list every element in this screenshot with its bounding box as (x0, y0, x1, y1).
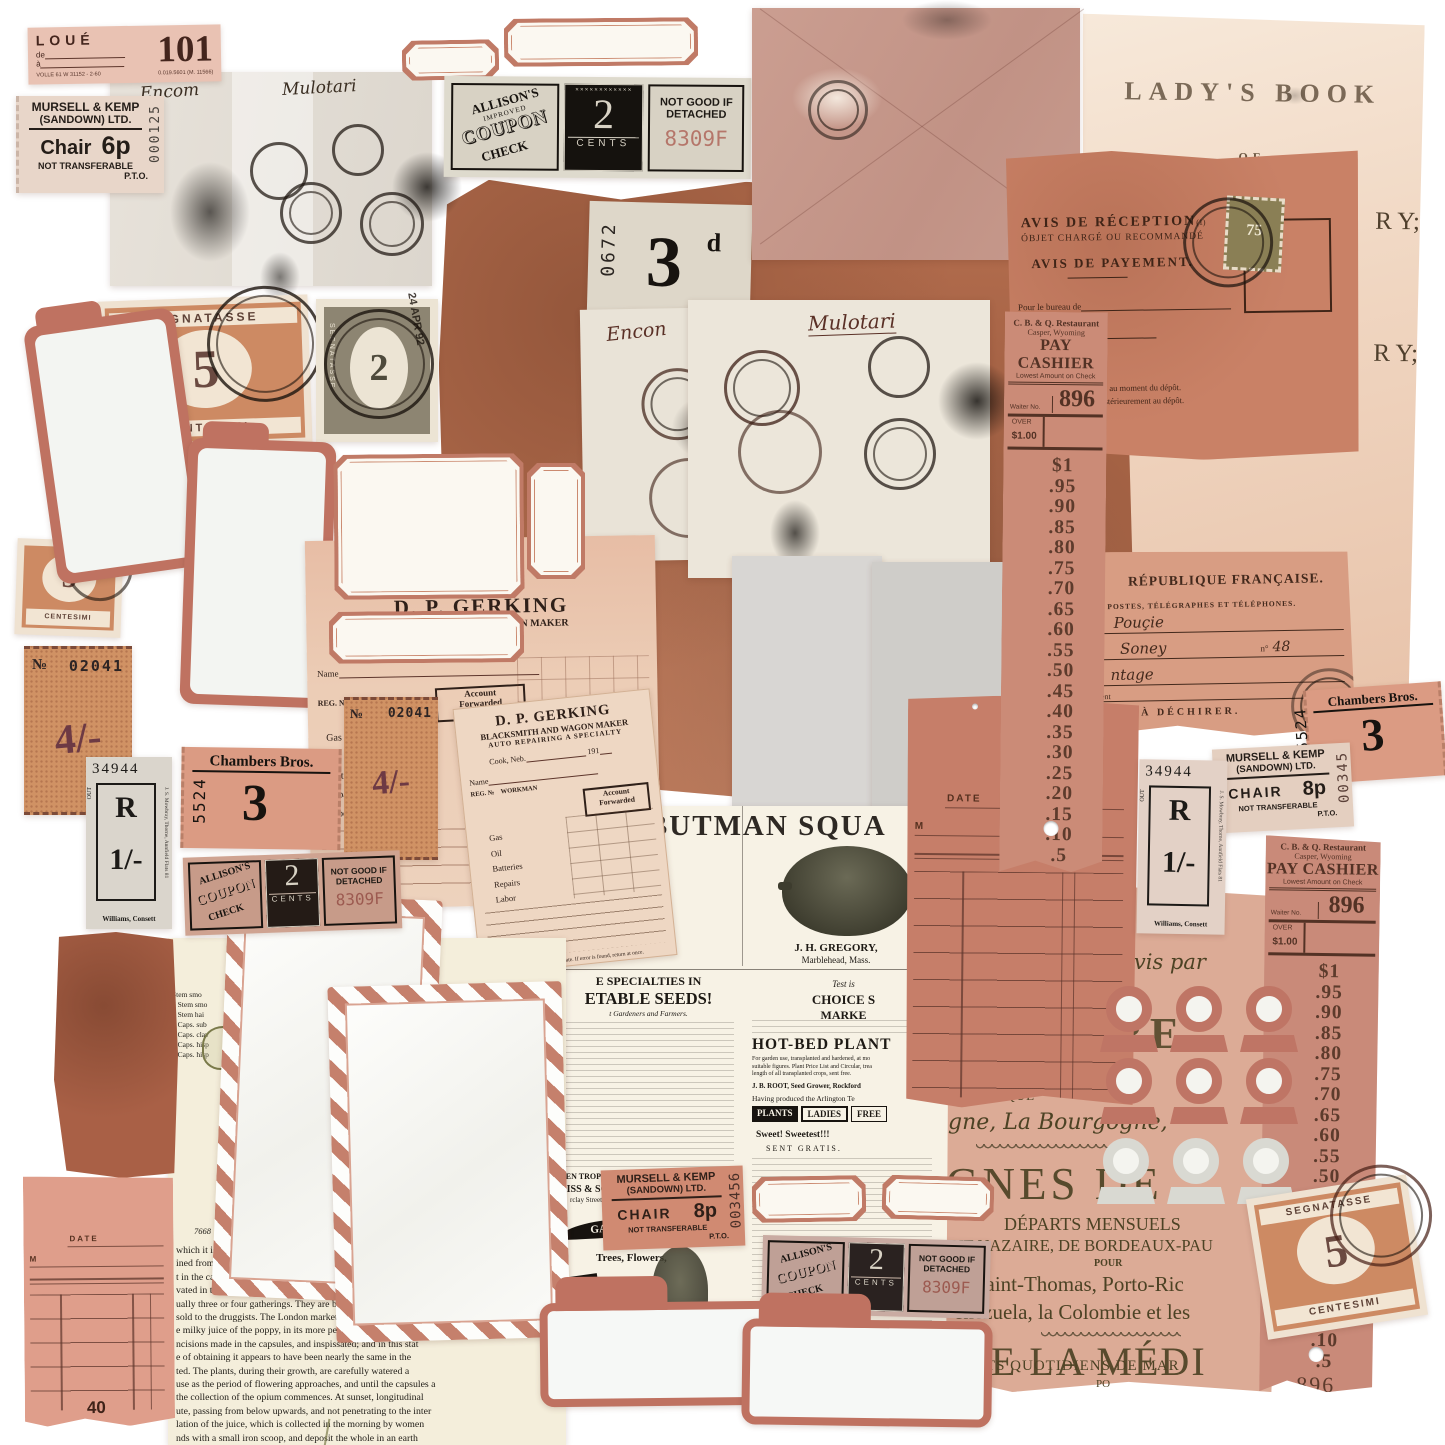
ticket-note: NOT TRANSFERABLE (23, 161, 148, 171)
handwriting: Soney (1120, 639, 1167, 658)
postmark-icon (280, 182, 342, 244)
ticket-serial: 000125 (148, 104, 163, 163)
grid-label (881, 1175, 994, 1222)
page-edge-text: R Y; (1375, 208, 1420, 237)
postmark-icon (864, 418, 936, 490)
ticket-bottom-text: Williams, Consett (86, 915, 172, 923)
pc-over-row: OVER $1.00 (1007, 417, 1102, 451)
anchor-base (1097, 1187, 1155, 1204)
stain (1282, 86, 1308, 104)
allison-serial-panel: NOT GOOD IF DETACHED 8309F (648, 84, 744, 172)
loue-ticket: LOUÉ de à 101 VOLLE 61 W 31152 - 2-60 0.… (28, 24, 222, 84)
ticket-number-row: №02041 (344, 700, 438, 722)
rf-no-val: 48 (1272, 639, 1290, 655)
postmark-icon (808, 80, 868, 140)
allison-value: 2 (564, 93, 644, 138)
allison-coupon-check: ALLISON'S COUPON CHECK 2 CENTS NOT GOOD … (183, 850, 403, 936)
anchor-ring-icon (1243, 1138, 1289, 1184)
segnatasse-2-lire-stamp: SEGNATASSE 2 24 APR 92 (316, 299, 438, 442)
ticket-box: R 1/- (1147, 785, 1211, 906)
ticket-item: CHAIR (1228, 783, 1283, 802)
allison-detached: DETACHED (910, 1263, 983, 1275)
allison-detached: DETACHED (324, 874, 393, 886)
allison-unit: CENTS (851, 1276, 901, 1287)
label-inner-rule (336, 617, 517, 657)
choice1: Test is (832, 979, 854, 989)
no-02041-ticket: №02041 4/- (344, 697, 438, 860)
blank-label (504, 17, 698, 67)
postmark-icon (332, 124, 384, 176)
r-34944-ticket: 34944 R 1/- J. S. Mowbray, Thorne, Annfi… (1136, 759, 1227, 935)
handwriting: Pouçie (1113, 613, 1164, 632)
chambers-serial: 5524 (190, 777, 210, 824)
pc-check-no: 896 (1319, 892, 1374, 920)
rule (29, 128, 142, 130)
pc-waiter-row: Waiter No. 896 (1008, 385, 1103, 418)
rule (68, 1245, 164, 1247)
form-line: Pouçie (1099, 610, 1343, 634)
pc-check-no: 896 (1053, 386, 1101, 414)
avis-title: AVIS DE RÉCEPTION (1021, 214, 1197, 231)
handwriting: Mulotari (282, 76, 358, 100)
chambers-bros-ticket: Chambers Bros. 5524 3 (180, 747, 341, 850)
r-34944-ticket: 34944 R 1/- J. S. Mowbray, Thorne, Annfi… (86, 757, 172, 929)
section-rule (556, 969, 926, 970)
ink-smudge (902, 0, 992, 40)
allison-notgood: NOT GOOD IF (650, 96, 742, 109)
restaurant-date-card: DATE M 40 (23, 1175, 175, 1426)
ticket-serial: 003456 (727, 1172, 745, 1229)
anchor-base (1100, 1107, 1158, 1124)
m-label: M (30, 1255, 39, 1264)
ticket-unit: d (706, 228, 721, 258)
loue-brand: LOUÉ (36, 30, 158, 48)
squash-stem (778, 882, 792, 890)
segnatasse-5-stamp: SEGNATASSE 5 CENTESIMI (1246, 1174, 1428, 1340)
ticket-number: 34944 (86, 757, 172, 778)
photo-anchor (1170, 1058, 1228, 1124)
loue-small-print: 0.019.5601 (M. 11566) (158, 69, 213, 76)
rf-dechirer: À DÉCHIRER. (1141, 706, 1240, 719)
rule (30, 1277, 164, 1280)
blank-label (402, 39, 500, 81)
allison-coupon-check: ALLISON'S IMPROVED COUPON CHECK ✕✕✕✕✕✕✕✕… (444, 76, 752, 179)
ticket-number: 34944 (1139, 759, 1227, 782)
pay-cashier-strip: C. B. & Q. Restaurant Casper, Wyoming PA… (999, 311, 1108, 872)
rf-title: RÉPUBLIQUE FRANÇAISE. (1099, 570, 1353, 590)
allison-unit: CENTS (567, 137, 639, 150)
spec2: ETABLE SEEDS! (556, 989, 741, 1009)
mursell-kemp-ticket-6p: MURSELL & KEMP (SANDOWN) LTD. Chair 6p N… (16, 96, 164, 193)
anchor-base (1170, 1035, 1228, 1052)
handwriting: ntage (1110, 665, 1153, 684)
allison-serial: 8309F (910, 1277, 983, 1298)
ticket-value: 3 (645, 220, 683, 304)
fine-print-texture (562, 1022, 734, 1168)
photo-anchor (1170, 986, 1228, 1052)
allison-serial: 8309F (325, 888, 395, 909)
spec3: t Gardeners and Farmers. (556, 1009, 741, 1018)
grid-label-vertical (527, 463, 585, 579)
lignes-l5: enezuela, la Colombie et les (954, 1300, 1190, 1325)
loue-a-row: à (36, 57, 158, 68)
anchor-ring-icon (1246, 1058, 1292, 1104)
anchor-base (1240, 1035, 1298, 1052)
ticket-price: 8p (1302, 777, 1327, 801)
ticket-bottom-text: Williams, Consett (1137, 919, 1225, 929)
fig-label: 7668 (194, 1226, 211, 1236)
allison-unit: CENTS (269, 892, 316, 904)
loue-number: 101 (157, 29, 213, 70)
allison-serial-panel: NOT GOOD IF DETACHED 8309F (907, 1244, 986, 1314)
plants-box: PLANTS (752, 1106, 798, 1122)
seller: J. H. GREGORY, (746, 942, 926, 954)
handwriting: Encon (605, 318, 667, 346)
date-label: DATE (69, 1234, 98, 1243)
photo-anchor (1240, 1058, 1298, 1124)
gratis-line: SENT GRATIS. (766, 1144, 842, 1153)
ticket-name: MURSELL & KEMP (23, 100, 148, 114)
avis-line2: ÓBJET CHARGÉ OU RECOMMANDÉ (1021, 232, 1204, 245)
grid-label (752, 1175, 867, 1223)
photo-anchor-white (1167, 1138, 1225, 1204)
postmark-icon (868, 336, 930, 398)
mursell-kemp-ticket-8p: MURSELL & KEMP (SANDOWN) LTD. CHAIR 8p N… (601, 1166, 746, 1251)
anchor-ring-icon (1173, 1138, 1219, 1184)
label-inner-rule (340, 460, 517, 593)
loue-small-print: VOLLE 61 W 31152 - 2-60 (36, 71, 101, 78)
french-newspaper-footer: PARTS QUOTIDIENS DE MAR PO (946, 1358, 1278, 1398)
ticket-out-label: OUT (87, 787, 93, 799)
anchor-ring-icon (1176, 1058, 1222, 1104)
ticket-price: 4/- (343, 761, 439, 805)
pc-company: C. B. & Q. Restaurant (1005, 311, 1108, 328)
ephemera-collage: LADY'S BOOK OF R Y; R Y; Encom Mulotari … (0, 0, 1445, 1445)
rule (30, 1265, 164, 1267)
squash-illustration (782, 846, 912, 936)
anchor-ring-icon (1246, 986, 1292, 1032)
date-label: DATE (947, 793, 982, 804)
kraft-scrap (54, 932, 178, 1178)
handwriting: Mulotari (808, 308, 897, 336)
free-box: FREE (851, 1106, 887, 1122)
ticket-item: Chair (40, 137, 91, 160)
lignes-departs: DÉPARTS MENSUELS (1004, 1214, 1181, 1235)
lignes-l7: PO (1096, 1378, 1110, 1390)
anchor-base (1170, 1107, 1228, 1124)
ticket-number-row: №02041 (24, 649, 132, 675)
pc-title: PAY CASHIER (1265, 860, 1380, 880)
anchor-base (1100, 1035, 1158, 1052)
allison-value-panel: ✕✕✕✕✕✕✕✕✕✕✕✕ 2 CENTS (563, 84, 643, 172)
form-line: ent (1101, 688, 1315, 702)
street-line: rclay Street, (570, 1196, 604, 1204)
stamp-unit: CENTESIMI (26, 609, 111, 628)
allison-value: 2 (848, 1242, 905, 1277)
tag-face (34, 318, 198, 574)
ticket-item: CHAIR (617, 1205, 672, 1223)
col-rule (742, 806, 743, 966)
pc-subtitle: Lowest Amount on Check (1008, 373, 1103, 386)
avis-title2: AVIS DE PAYEMENT. (1031, 254, 1194, 272)
pc-over-row: OVER $1.00 (1268, 922, 1375, 956)
anchor-ring-icon (1106, 1058, 1152, 1104)
gerking-repair-ticket: D. P. GERKING BLACKSMITH AND WAGON MAKER… (453, 688, 678, 975)
punch-hole (1309, 1347, 1324, 1362)
ticket-side-text: J. S. Mowbray, Thorne, Annfield Flats 81 (1216, 791, 1224, 882)
gerking-rows: Gas Oil Batteries Repairs Labor (488, 828, 526, 908)
rf-sub: POSTES, TÉLÉGRAPHES ET TÉLÉPHONES. (1107, 598, 1353, 611)
punch-hole (1043, 821, 1058, 836)
anchor-base (1240, 1107, 1298, 1124)
ticket-box: R 1/- (96, 783, 156, 901)
card-number: 40 (87, 1398, 106, 1418)
pc-amount-column: $1 .95 .90 .85 .80 .75 .70 .65 .60 .55 .… (999, 449, 1106, 866)
allison-brand-panel: ALLISON'S COUPON CHECK (188, 860, 263, 931)
allison-detached: DETACHED (650, 108, 742, 121)
pc-title: PAY CASHIER (1004, 336, 1107, 373)
form-line: Soney n° 48 (1100, 636, 1344, 660)
striped-mat (327, 981, 570, 1343)
mursell-kemp-ticket-8p: MURSELL & KEMP (SANDOWN) LTD. CHAIR 8p N… (1212, 742, 1354, 833)
rule (30, 1282, 164, 1284)
rule (1068, 277, 1128, 279)
folder-tab-label (741, 1318, 992, 1427)
pc-waiter-row: Waiter No. 896 (1269, 890, 1376, 923)
photo-anchor (1100, 1058, 1158, 1124)
allison-value: 2 (265, 858, 319, 894)
ticket-out-label: OUT (1140, 789, 1146, 801)
photo-anchor (1240, 986, 1298, 1052)
chambers-value: 3 (1359, 707, 1386, 761)
trees-line: Trees, Flowers, (596, 1252, 667, 1264)
grid-label (333, 453, 524, 600)
spec1: E SPECIALTIES IN (556, 974, 741, 989)
postmark-icon (738, 410, 822, 494)
photo-anchor (1100, 986, 1158, 1052)
ticket-serial: 0672 (598, 221, 620, 277)
punch-hole (972, 703, 978, 709)
ticket-pto: P.T.O. (23, 171, 148, 181)
ink-smudge (170, 162, 250, 262)
ledger-lines (912, 871, 1123, 1099)
seller2: Marblehead, Mass. (746, 955, 926, 965)
label-inner-rule (534, 470, 578, 572)
rf-no-label: n° (1260, 643, 1268, 653)
pc-maker: Pacific Restaurant Check System Manufact… (1258, 1400, 1373, 1424)
ticket-price: 6p (101, 132, 130, 161)
allison-brand-panel: ALLISON'S IMPROVED COUPON CHECK (451, 83, 559, 171)
ticket-side-text: J. S. Mowbray, Thorne, Annfield Flats 81 (163, 787, 169, 878)
ladies-box: LADIES (801, 1106, 849, 1122)
ledger-grid (565, 808, 661, 899)
anchor-ring-icon (1106, 986, 1152, 1032)
photo-anchor-white (1097, 1138, 1155, 1204)
allison-serial-panel: NOT GOOD IF DETACHED 8309F (322, 855, 397, 926)
label-inner-rule (889, 1182, 988, 1215)
ticket-serial: 00345 (1334, 750, 1353, 803)
ledger-lines (30, 1293, 165, 1410)
anchor-ring-icon (1103, 1138, 1149, 1184)
label-inner-rule (759, 1182, 860, 1216)
blank-label (329, 610, 524, 664)
allison-serial: 8309F (650, 126, 742, 151)
m-label: M (915, 821, 925, 832)
lignes-pour: POUR (1094, 1258, 1122, 1269)
ticket-name2: (SANDOWN) LTD. (23, 114, 148, 126)
chambers-name: Chambers Bros. (192, 747, 330, 774)
label-inner-rule (511, 24, 691, 60)
ladys-book-title: LADY'S BOOK (1082, 76, 1424, 111)
allison-value-panel: 2 CENTS (265, 858, 320, 928)
sweet-line: Sweet! Sweetest!!! (756, 1130, 830, 1140)
avis-bureau-row: Pour le bureau de (1018, 299, 1231, 312)
ticket-price: 8p (693, 1199, 717, 1223)
fine-print-texture (752, 1020, 932, 1034)
anchor-base (1167, 1187, 1225, 1204)
chambers-value: 3 (242, 774, 269, 833)
pc-company: C. B. & Q. Restaurant (1266, 835, 1381, 853)
page-edge-text: R Y; (1373, 340, 1418, 369)
anchor-ring-icon (1176, 986, 1222, 1032)
label-inner-rule (409, 46, 492, 73)
letter-sheet: Mulotari (688, 300, 990, 578)
